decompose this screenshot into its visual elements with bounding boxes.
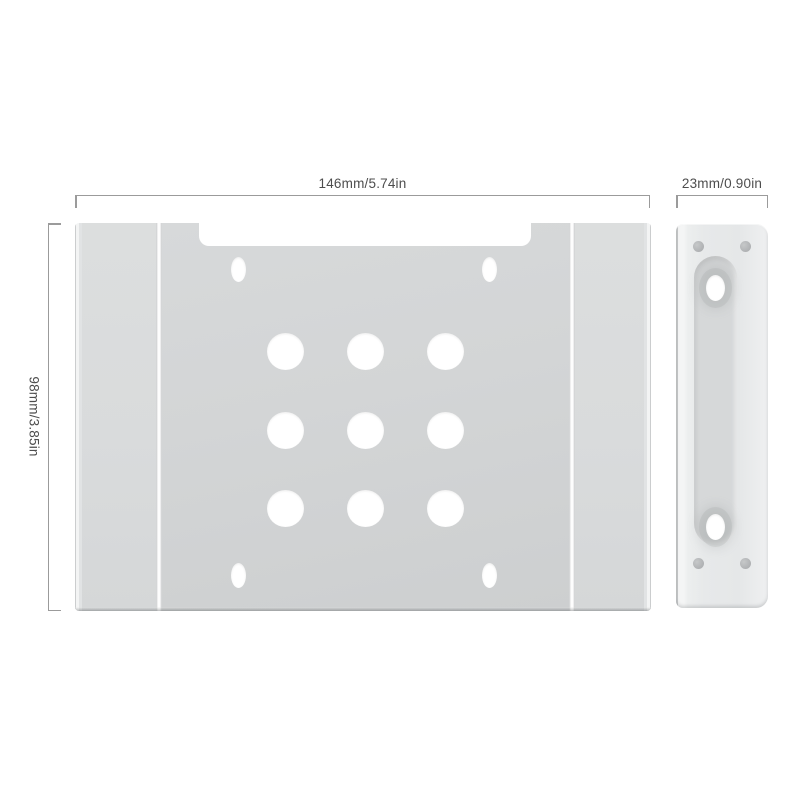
mounting-hole xyxy=(347,412,384,449)
mounting-hole xyxy=(427,412,464,449)
width-dimension-label: 146mm/5.74in xyxy=(75,176,650,191)
rivet xyxy=(693,558,704,569)
depth-dimension-line xyxy=(676,195,768,209)
mounting-slot xyxy=(231,257,246,282)
mounting-hole xyxy=(267,490,304,527)
product-dimension-diagram: 146mm/5.74in 23mm/0.90in 98mm/3.85in xyxy=(0,0,800,800)
mounting-hole xyxy=(347,333,384,370)
left-folded-edge xyxy=(75,223,82,611)
mounting-slot xyxy=(482,563,497,588)
dimension-tick xyxy=(649,195,651,208)
bottom-edge-bevel xyxy=(75,607,651,611)
bracket-side-view xyxy=(676,224,768,608)
top-notch-cutout xyxy=(199,223,531,246)
recessed-slot xyxy=(694,256,737,545)
mounting-hole xyxy=(267,333,304,370)
mounting-hole xyxy=(427,333,464,370)
mounting-slot xyxy=(482,257,497,282)
dimension-tick xyxy=(676,195,678,208)
height-dimension-line xyxy=(48,223,62,611)
width-dimension-line xyxy=(75,195,650,209)
dimension-tick xyxy=(49,610,61,612)
mounting-hole xyxy=(267,412,304,449)
dimension-tick xyxy=(75,195,77,208)
screw-slot-hole xyxy=(706,514,725,540)
mounting-hole xyxy=(347,490,384,527)
rivet xyxy=(693,241,704,252)
rivet xyxy=(740,241,751,252)
dimension-tick xyxy=(49,223,61,225)
bracket-top-view xyxy=(75,223,651,611)
right-rail xyxy=(575,223,644,611)
mounting-slot xyxy=(231,563,246,588)
depth-dimension-label: 23mm/0.90in xyxy=(676,176,768,191)
dimension-tick xyxy=(767,195,769,208)
rivet xyxy=(740,558,751,569)
screw-slot-hole xyxy=(706,275,725,301)
right-folded-edge xyxy=(644,223,651,611)
mounting-hole xyxy=(427,490,464,527)
left-rail xyxy=(82,223,156,611)
height-dimension-label: 98mm/3.85in xyxy=(27,352,42,482)
